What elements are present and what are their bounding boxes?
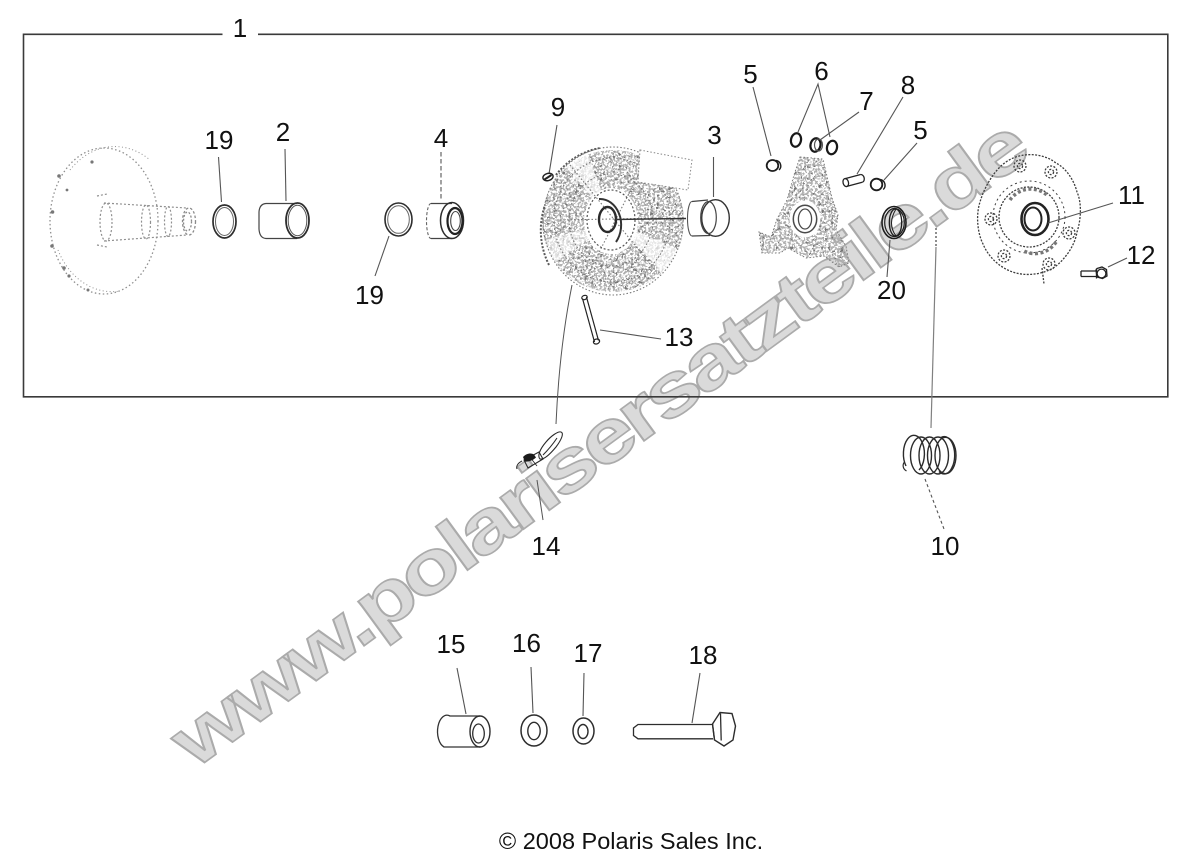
svg-text:11: 11 bbox=[1118, 180, 1145, 210]
svg-text:16: 16 bbox=[512, 628, 541, 658]
svg-text:12: 12 bbox=[1127, 240, 1156, 270]
svg-text:5: 5 bbox=[743, 59, 757, 89]
svg-text:17: 17 bbox=[574, 638, 603, 668]
svg-text:1: 1 bbox=[233, 13, 247, 43]
svg-text:13: 13 bbox=[665, 322, 694, 352]
svg-text:3: 3 bbox=[707, 120, 721, 150]
svg-text:2: 2 bbox=[276, 117, 290, 147]
svg-text:19: 19 bbox=[205, 125, 234, 155]
svg-text:4: 4 bbox=[434, 123, 448, 153]
svg-text:10: 10 bbox=[931, 531, 960, 561]
svg-text:© 2008 Polaris Sales Inc.: © 2008 Polaris Sales Inc. bbox=[499, 828, 763, 854]
svg-text:19: 19 bbox=[355, 280, 384, 310]
svg-text:8: 8 bbox=[901, 70, 915, 100]
svg-text:7: 7 bbox=[859, 86, 873, 116]
svg-text:18: 18 bbox=[689, 640, 718, 670]
svg-text:6: 6 bbox=[814, 56, 828, 86]
svg-text:9: 9 bbox=[551, 92, 565, 122]
svg-text:15: 15 bbox=[437, 629, 466, 659]
svg-text:14: 14 bbox=[532, 531, 561, 561]
svg-text:20: 20 bbox=[877, 275, 906, 305]
svg-text:5: 5 bbox=[913, 115, 927, 145]
